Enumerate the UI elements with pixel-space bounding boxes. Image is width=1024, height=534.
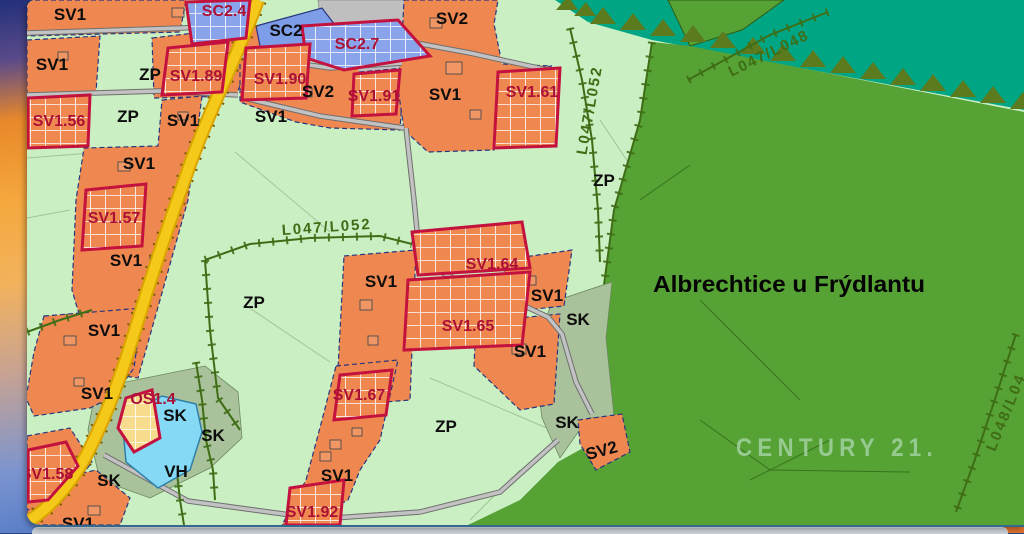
zone-label-sk: SK: [566, 310, 590, 329]
zone-label-sv1: SV1: [88, 321, 120, 340]
zone-label-sv1: SV1: [531, 286, 563, 305]
zoning-map-canvas[interactable]: SV1 SV1 ZP SC2 SV2 SV2 SV1 ZP SV1 SV1 SV…: [27, 0, 1024, 525]
zone-label-sv1: SV1: [81, 384, 113, 403]
parcel-label-sv1-56: SV1.56: [33, 113, 86, 130]
zone-label-sv1: SV1: [36, 55, 68, 74]
parcel-label-sv1-57: SV1.57: [88, 210, 141, 227]
zone-label-sv1: SV1: [123, 154, 155, 173]
map-region-title: Albrechtice u Frýdlantu: [653, 271, 925, 297]
zone-label-sv1: SV1: [365, 272, 397, 291]
zone-label-sv1: SV1: [321, 466, 353, 485]
parcel-label-sc2-7: SC2.7: [335, 36, 380, 53]
parcel-sv1-61: [494, 68, 560, 148]
zone-label-zp: ZP: [139, 65, 161, 84]
parcel-label-os1-4: OS1.4: [130, 391, 175, 408]
zone-label-zp: ZP: [117, 107, 139, 126]
parcel-label-sv1-67: SV1.67: [333, 387, 386, 404]
parcel-label-sv1-65: SV1.65: [442, 318, 495, 335]
parcel-label-sv1-58: SV1.58: [27, 466, 73, 483]
zone-label-zp: ZP: [435, 417, 457, 436]
zone-label-vh: VH: [164, 462, 188, 481]
parcel-sv1-65: [404, 272, 530, 350]
zone-label-sv1: SV1: [429, 85, 461, 104]
parcel-label-sc2-4: SC2.4: [202, 3, 247, 20]
zone-label-sv2: SV2: [436, 9, 468, 28]
zoning-map-image[interactable]: SV1 SV1 ZP SC2 SV2 SV2 SV1 ZP SV1 SV1 SV…: [27, 0, 1024, 527]
zone-label-sv1: SV1: [54, 5, 86, 24]
zone-label-zp: ZP: [593, 171, 615, 190]
zone-label-sv1: SV1: [167, 111, 199, 130]
zone-label-sv1: SV1: [255, 107, 287, 126]
zone-label-sv1: SV1: [110, 251, 142, 270]
zone-label-zp: ZP: [243, 293, 265, 312]
parcel-label-sv1-92: SV1.92: [286, 504, 339, 521]
zone-label-sk: SK: [97, 471, 121, 490]
zone-label-sv1: SV1: [514, 342, 546, 361]
parcel-label-sv1-89: SV1.89: [170, 68, 223, 85]
watermark-century21: CENTURY 21.: [736, 434, 938, 462]
parcel-label-sv1-90: SV1.90: [254, 71, 307, 88]
zone-label-sv2: SV2: [302, 82, 334, 101]
zone-label-sk: SK: [201, 426, 225, 445]
parcel-label-sv1-61: SV1.61: [506, 84, 559, 101]
zone-label-sk: SK: [555, 413, 579, 432]
zone-label-sv1: SV1: [62, 514, 94, 525]
zone-label-sk: SK: [163, 406, 187, 425]
parcel-label-sv1-64: SV1.64: [466, 256, 519, 273]
zone-label-sc2: SC2: [269, 21, 302, 40]
parcel-label-sv1-91: SV1.91: [348, 88, 401, 105]
